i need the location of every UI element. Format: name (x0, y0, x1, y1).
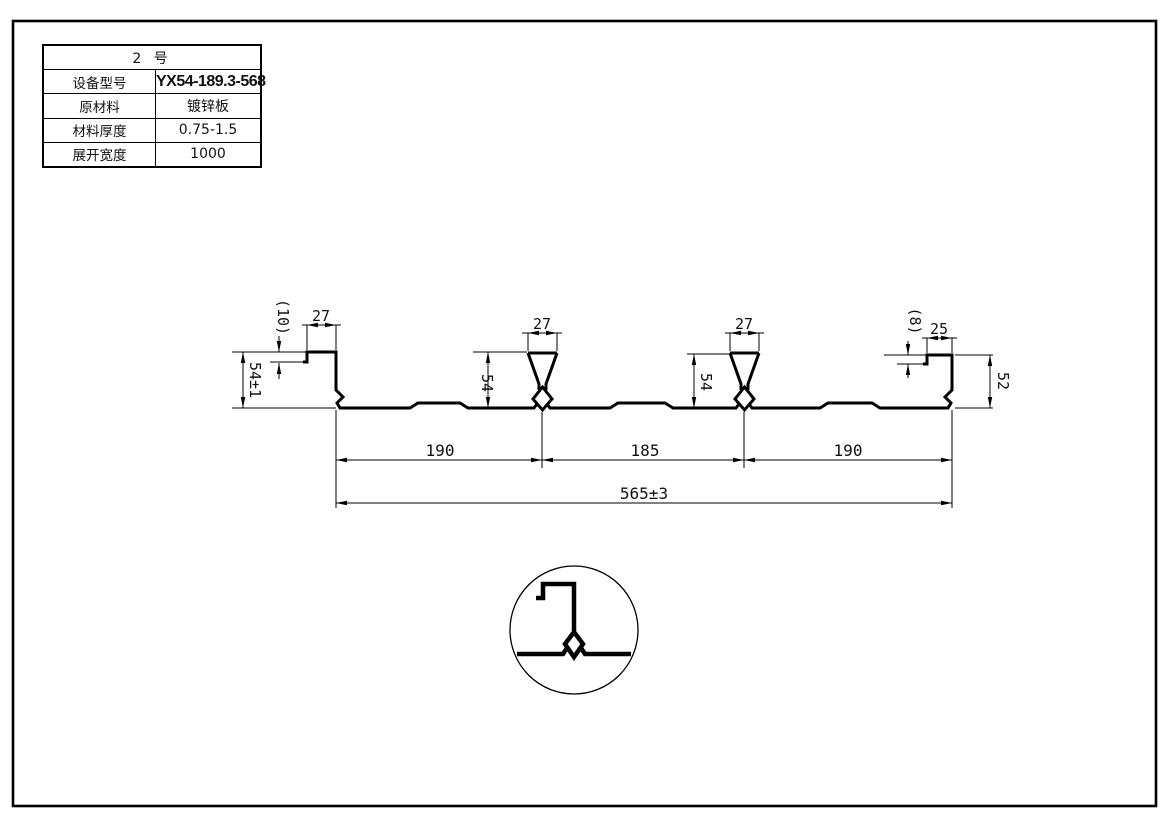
table-title-row: 2 号 (44, 46, 260, 69)
dim-right-step: (8) (906, 307, 924, 334)
table-row-model: 设备型号 YX54-189.3-568 (44, 69, 260, 93)
dimension-lines (232, 323, 993, 508)
dim-right-height: 52 (994, 372, 1012, 390)
title-block-table: 2 号 设备型号 YX54-189.3-568 原材料 镀锌板 材料厚度 0.7… (42, 44, 262, 168)
seam-detail-profile (517, 584, 631, 657)
model-label: 设备型号 (44, 72, 155, 92)
thickness-label: 材料厚度 (44, 120, 155, 140)
dim-pitch-left: 190 (426, 441, 455, 460)
panel-base-line (303, 352, 952, 408)
seam-detail-view (510, 566, 638, 694)
right-edge-dim-lines (884, 338, 993, 408)
dovetail-rib-1 (528, 353, 557, 410)
dim-right-lip-width: 25 (930, 320, 948, 338)
dim-left-lip-width: 27 (312, 307, 330, 325)
profile-outline (303, 352, 952, 410)
dim-pitch-mid: 185 (631, 441, 660, 460)
dimension-texts: (10) 27 54±1 27 54 27 54 (8) 25 52 190 1… (246, 299, 1012, 503)
table-row-thickness: 材料厚度 0.75-1.5 (44, 118, 260, 142)
model-value: YX54-189.3-568 (155, 70, 266, 93)
dovetail-rib-2 (730, 353, 759, 410)
dim-rib1-height: 54 (478, 374, 496, 392)
coil-width-value: 1000 (155, 143, 260, 166)
thickness-value: 0.75-1.5 (155, 119, 260, 142)
sheet-number-label: 2 号 (132, 48, 171, 68)
dim-left-step: (10) (274, 299, 292, 335)
material-label: 原材料 (44, 96, 155, 116)
drawing-sheet: (10) 27 54±1 27 54 27 54 (8) 25 52 190 1… (0, 0, 1169, 827)
dimension-arrowheads (241, 323, 992, 505)
material-value: 镀锌板 (155, 94, 260, 117)
table-row-coil-width: 展开宽度 1000 (44, 142, 260, 166)
dim-rib2-height: 54 (697, 373, 715, 391)
dim-rib1-width: 27 (533, 315, 551, 333)
coil-width-label: 展开宽度 (44, 144, 155, 164)
dim-rib2-width: 27 (735, 315, 753, 333)
table-row-material: 原材料 镀锌板 (44, 93, 260, 117)
dim-overall-width: 565±3 (620, 484, 668, 503)
dim-left-height: 54±1 (246, 362, 264, 398)
dim-pitch-right: 190 (834, 441, 863, 460)
